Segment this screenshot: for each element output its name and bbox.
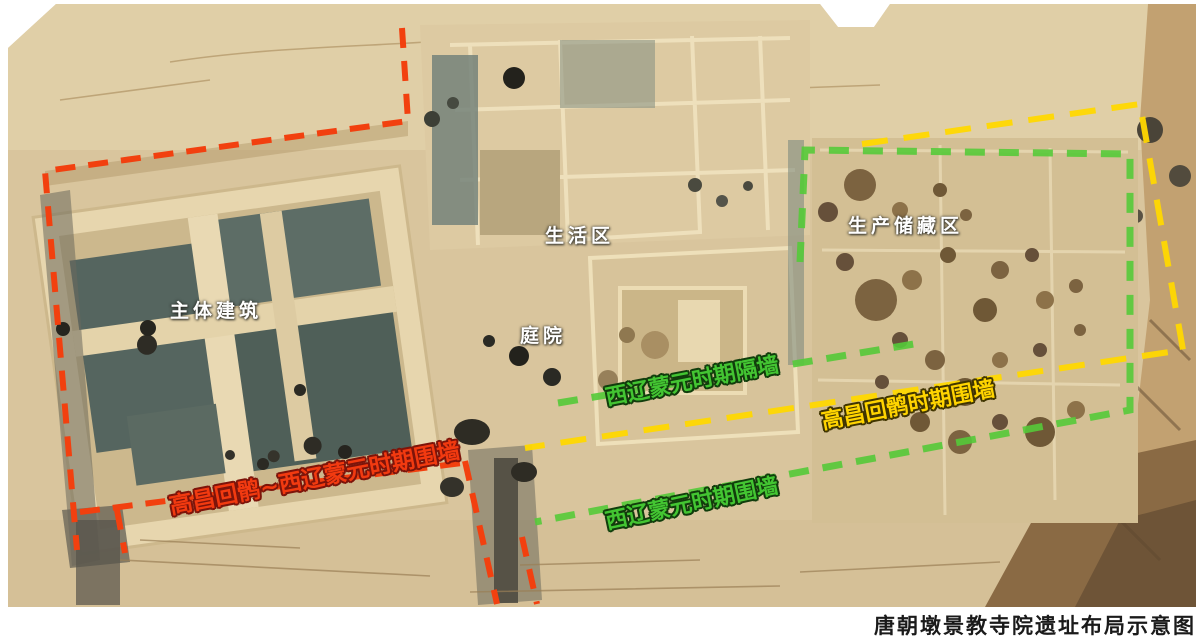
figure-caption: 唐朝墩景教寺院遗址布局示意图 bbox=[874, 610, 1196, 640]
label-courtyard: 庭院 bbox=[520, 327, 566, 346]
label-production-storage: 生产储藏区 bbox=[848, 217, 963, 236]
label-living-area: 生活区 bbox=[545, 227, 614, 246]
site-layout-figure: 主体建筑 生活区 庭院 生产储藏区 高昌回鹘~西辽蒙元时期围墙 高昌回鹘时期围墙… bbox=[0, 0, 1202, 641]
label-main-building: 主体建筑 bbox=[170, 302, 262, 321]
